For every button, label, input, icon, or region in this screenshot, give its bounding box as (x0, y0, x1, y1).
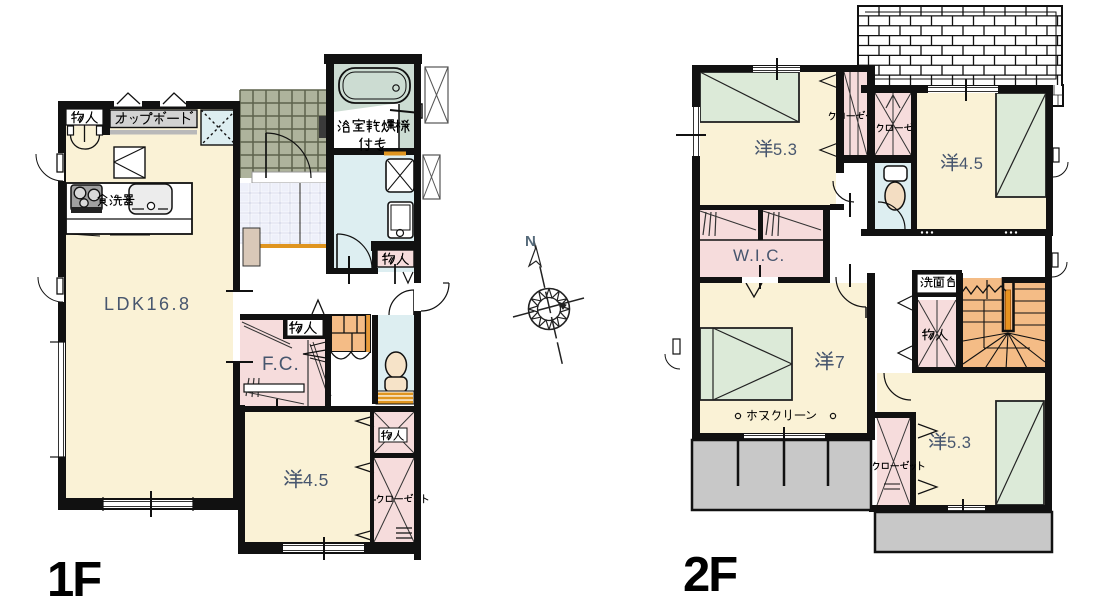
svg-text:4.5: 4.5 (959, 155, 983, 173)
svg-text:LDK16.8: LDK16.8 (104, 294, 192, 314)
svg-text:W.I.C.: W.I.C. (733, 246, 785, 265)
svg-text:5.3: 5.3 (947, 434, 971, 452)
svg-text:2F: 2F (683, 548, 737, 602)
svg-text:7: 7 (835, 352, 845, 372)
svg-text:N: N (525, 233, 536, 250)
svg-text:5.3: 5.3 (773, 141, 797, 159)
svg-text:4.5: 4.5 (303, 470, 329, 490)
svg-text:F.C.: F.C. (262, 354, 300, 375)
svg-text:1F: 1F (47, 553, 101, 607)
